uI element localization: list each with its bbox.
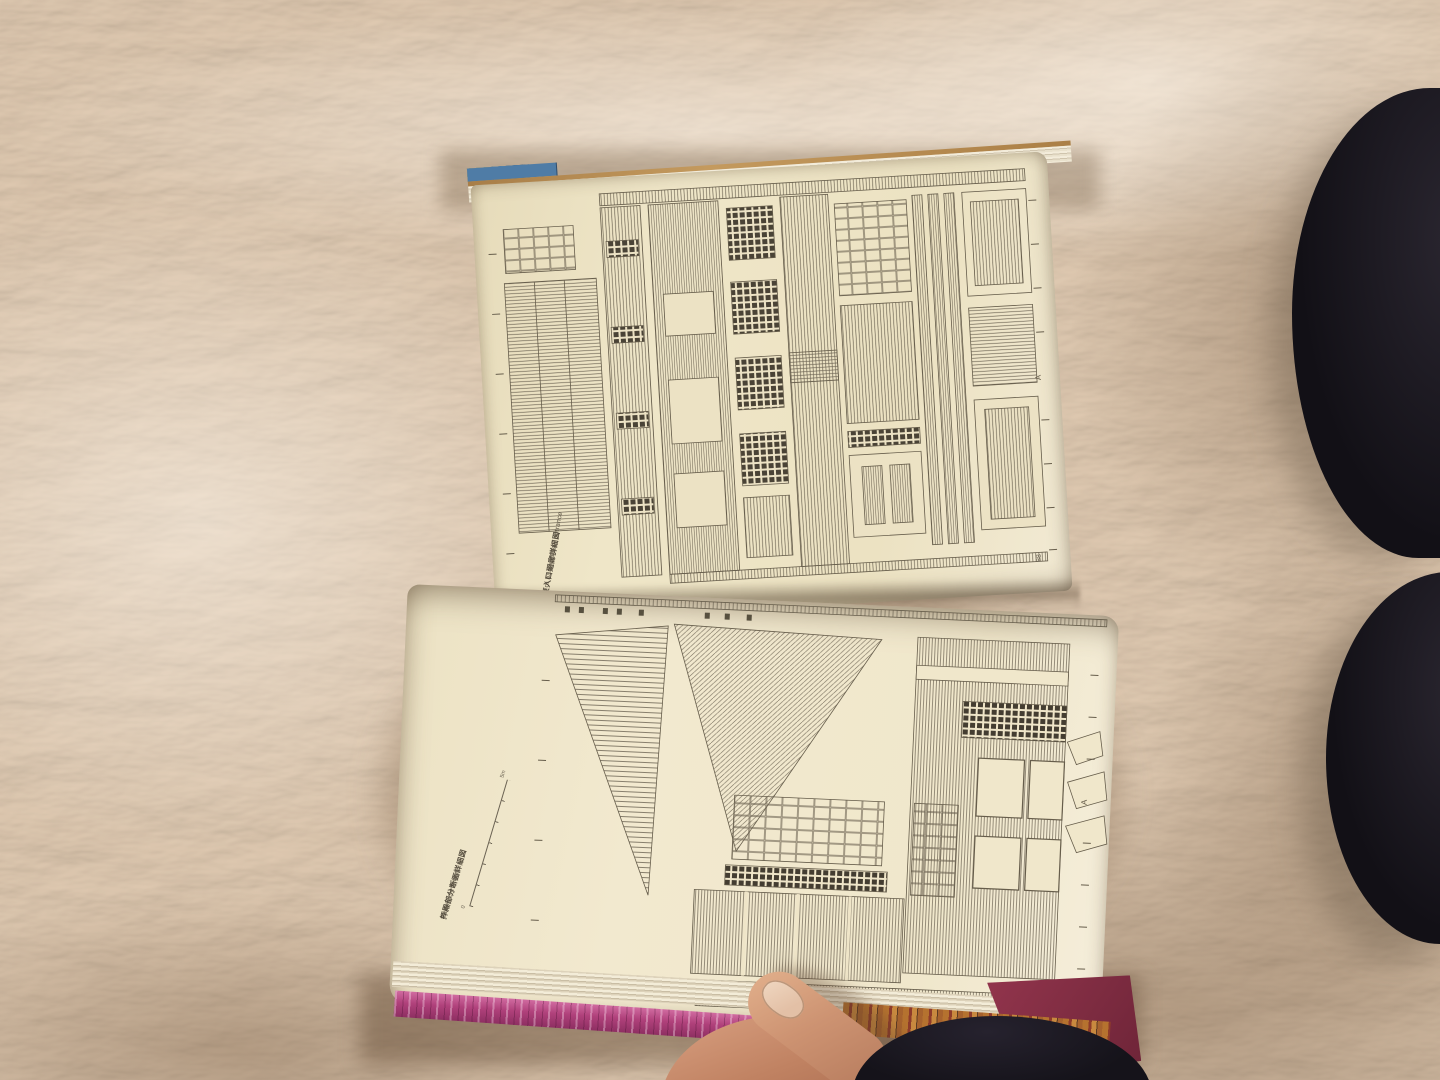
page-number: 88 bbox=[1036, 554, 1043, 562]
architectural-drawing-top: A bbox=[470, 151, 1072, 624]
photo-scene: A 霊廟東入口廻廊詳細図 Details of banquet hall ent… bbox=[0, 0, 1440, 1080]
book-page-top: A 霊廟東入口廻廊詳細図 Details of banquet hall ent… bbox=[470, 151, 1072, 624]
